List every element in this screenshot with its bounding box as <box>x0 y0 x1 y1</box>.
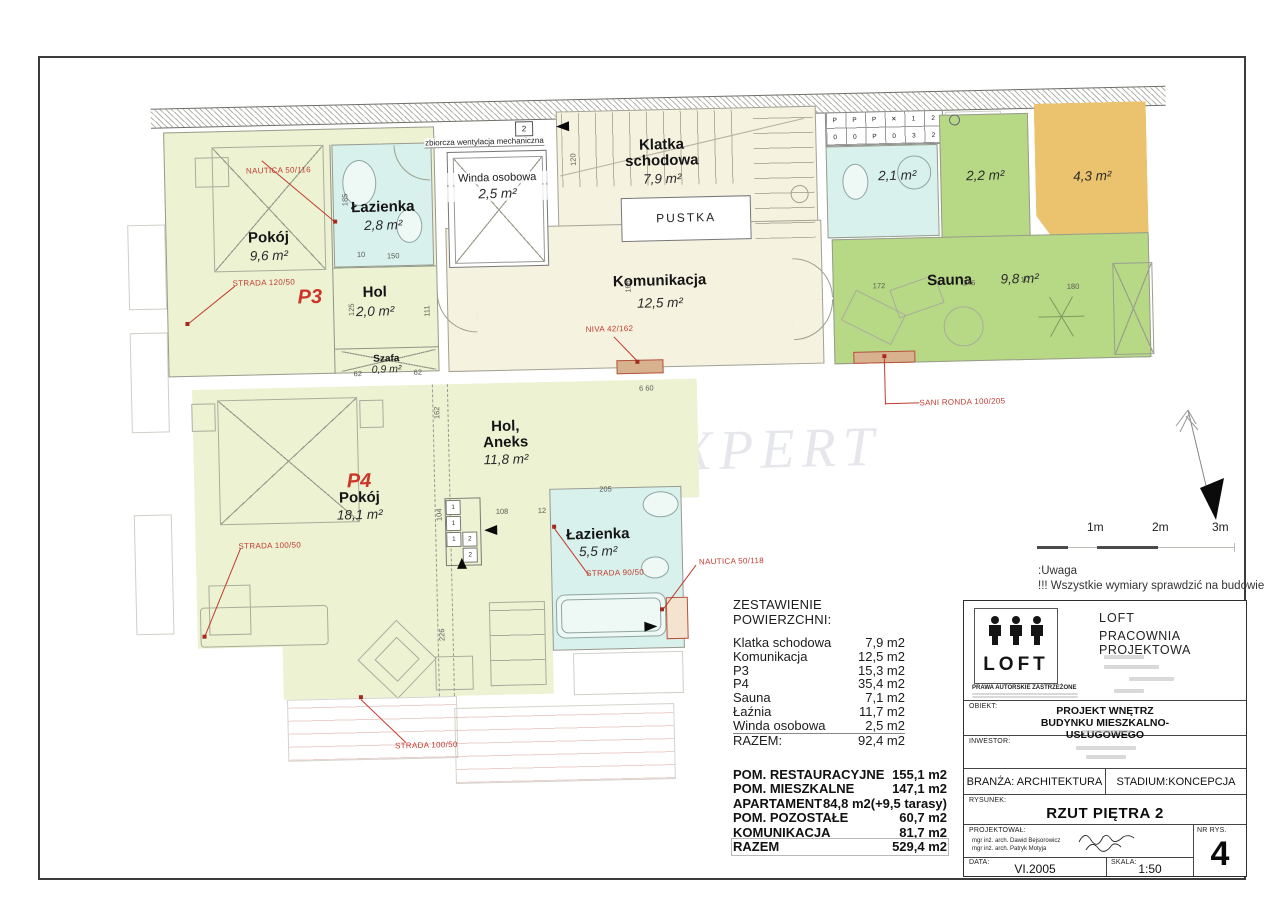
signature-icon <box>1076 828 1148 854</box>
scale-label: 1m <box>1087 520 1104 534</box>
room-label: Hol <box>335 284 415 302</box>
scale-segment <box>1068 547 1097 548</box>
terrace-step <box>573 651 684 695</box>
title-block-nr-rys: NR RYS. 4 <box>1194 825 1246 876</box>
laundry-cell: ✕ <box>884 111 904 128</box>
radiator-marker <box>616 359 663 374</box>
row-label: POM. RESTAURACYJNE <box>733 768 884 782</box>
laundry-cell: 0 <box>825 129 845 146</box>
drawing-title: RZUT PIĘTRA 2 <box>964 805 1246 822</box>
nightstand <box>359 400 384 429</box>
date-value: VI.2005 <box>964 862 1106 876</box>
scale-segment <box>1097 546 1158 549</box>
product-label: STRADA 120/50 <box>232 278 295 288</box>
bath-cabinet <box>666 597 689 639</box>
product-label: STRADA 90/50 <box>586 568 644 578</box>
vent-box: 2 <box>515 121 533 136</box>
fine-print <box>972 693 1078 695</box>
laundry-cell: P <box>865 128 885 145</box>
areas-table-title: ZESTAWIENIE POWIERZCHNI: <box>733 597 905 627</box>
room-area: 5,5 m² <box>551 543 646 560</box>
note: :Uwaga !!! Wszystkie wymiary sprawdzić n… <box>1038 564 1264 594</box>
room-area: 11,8 m² <box>468 451 543 468</box>
terrace <box>287 696 458 762</box>
room-label: Łazienka <box>338 199 428 217</box>
dimension-label: 185 <box>340 194 349 207</box>
kitchen-cell: 1 <box>445 500 460 515</box>
dimension-label: 12 <box>538 506 547 515</box>
row-value: 81,7 m2 <box>899 826 947 840</box>
door-arc <box>437 292 478 333</box>
studio-sub: PRACOWNIA PROJEKTOWA <box>1099 629 1246 657</box>
side-table <box>435 656 474 691</box>
desk <box>200 605 329 648</box>
kitchen-cell: 1 <box>446 516 461 531</box>
row-label: Komunikacja <box>733 650 807 664</box>
row-label: P4 <box>733 677 749 691</box>
table-row: POM. RESTAURACYJNE155,1 m2 <box>733 768 947 782</box>
stadium-cell: STADIUM:KONCEPCJA <box>1106 769 1246 795</box>
red-dot <box>202 635 206 639</box>
areas-table: ZESTAWIENIE POWIERZCHNI: Klatka schodowa… <box>733 597 905 747</box>
row-label: RAZEM: <box>733 734 782 748</box>
dimension-label: 6 60 <box>639 383 654 392</box>
inwestor-blur <box>1086 755 1126 759</box>
laundry-cell: 0 <box>845 129 865 146</box>
product-label: SANI RONDA 100/205 <box>919 396 1005 407</box>
designer-name: mgr inż. arch. Dawid Bejsorowicz <box>972 838 1060 844</box>
row-value: 92,4 m2 <box>858 734 905 748</box>
scale-tick <box>1234 543 1235 552</box>
product-label: NAUTICA 50/118 <box>699 556 764 566</box>
table-row: KOMUNIKACJA81,7 m2 <box>733 826 947 840</box>
laundry-cell: P <box>844 112 864 129</box>
dimension-label: 120 <box>568 153 577 166</box>
title-block-projektowal: PROJEKTOWAŁ: mgr inż. arch. Dawid Bejsor… <box>964 825 1194 858</box>
door-arc <box>793 299 834 340</box>
scale-segment <box>1158 547 1234 548</box>
dimension-label: 125 <box>347 303 356 316</box>
branza-cell: BRANŻA: ARCHITEKTURA <box>964 769 1106 795</box>
title-block-data-skala: DATA: VI.2005 SKALA: 1:50 <box>964 858 1194 876</box>
dimension-label: 162 <box>432 406 441 419</box>
balcony <box>130 332 170 433</box>
room-area: 2,1 m² <box>842 167 952 184</box>
dimension-label: 226 <box>437 628 446 641</box>
logo-box: LOFT <box>974 608 1058 684</box>
floor-plan-sheet: { "plan": { "watermark": "ON'S EXPERT", … <box>0 0 1280 905</box>
scale-label: 3m <box>1212 520 1229 534</box>
copyright-text: PRAWA AUTORSKIE ZASTRZEŻONE <box>972 685 1092 691</box>
dimension-label: 150 <box>387 251 400 260</box>
room-area: 2,2 m² <box>940 167 1030 184</box>
dimension-label: 205 <box>599 484 612 493</box>
note-line: :Uwaga <box>1038 564 1264 579</box>
designer-name: mgr inż. arch. Patryk Motyja <box>972 846 1046 852</box>
red-dot <box>635 360 639 364</box>
drawing-number: 4 <box>1194 835 1246 874</box>
red-dot <box>882 354 886 358</box>
scale-bar: 1m 2m 3m <box>1035 520 1240 554</box>
room-label: Komunikacja <box>589 272 729 291</box>
dimension-label: 10 <box>357 250 366 259</box>
laundry-cell: 1 <box>903 110 923 127</box>
logo-figures-icon <box>985 615 1047 647</box>
row-label: POM. POZOSTAŁE <box>733 811 848 825</box>
vent-label: zbiorcza wentylacja mechaniczna <box>424 136 544 149</box>
room-area: 7,9 m² <box>592 170 732 188</box>
field-label: OBIEKT: <box>969 703 997 710</box>
row-value: 60,7 m2 <box>899 811 947 825</box>
balcony <box>134 514 175 635</box>
red-dot <box>552 525 556 529</box>
room-area: 12,5 m² <box>590 294 730 312</box>
field-label: NR RYS. <box>1197 827 1227 834</box>
table-row: P315,3 m2 <box>733 664 905 678</box>
balcony <box>127 224 167 310</box>
red-dot <box>359 695 363 699</box>
obiekt-blur <box>1082 730 1132 733</box>
table-row-total: RAZEM529,4 m2 <box>733 840 947 854</box>
dimension-label: 180 <box>1067 282 1080 291</box>
address-blur <box>1129 677 1174 681</box>
row-label: Klatka schodowa <box>733 636 831 650</box>
room-label: Pokój <box>228 229 308 247</box>
laundry-cell: P <box>864 111 884 128</box>
product-label: STRADA 100/50 <box>238 540 301 550</box>
dimension-label: 111 <box>422 305 431 317</box>
laundry-cell: P <box>825 112 845 129</box>
address-blur <box>1114 689 1144 693</box>
title-block-inwestor: INWESTOR: <box>964 736 1246 769</box>
room-sauna <box>832 232 1152 364</box>
scale-value: 1:50 <box>1106 862 1194 876</box>
logo-text: LOFT <box>975 654 1057 676</box>
dimension-label: 104 <box>434 508 443 521</box>
row-value: 35,4 m2 <box>858 677 905 691</box>
inwestor-blur <box>1076 746 1136 750</box>
row-value: 2,5 m2 <box>865 719 905 733</box>
table-row: Winda osobowa2,5 m2 <box>733 719 905 733</box>
room-label: Aneks <box>468 434 543 452</box>
dimension-label: 62 <box>354 369 363 378</box>
row-value: 7,9 m2 <box>865 636 905 650</box>
laundry-cell: 0 <box>884 128 904 145</box>
room-label: schodowa <box>592 152 732 171</box>
room-label: Winda osobowa <box>447 171 547 185</box>
direction-arrow-icon <box>484 525 497 535</box>
direction-arrow-icon <box>644 621 657 631</box>
row-value: 529,4 m2 <box>892 840 947 854</box>
hatched-column <box>1112 262 1154 355</box>
scale-segment <box>1037 546 1068 549</box>
apartment-code: P3 <box>285 286 336 310</box>
kitchen-cell: 1 <box>446 532 461 547</box>
room-area: 4,3 m² <box>1047 167 1137 184</box>
title-block-obiekt: OBIEKT: PROJEKT WNĘTRZ BUDYNKU MIESZKALN… <box>964 701 1246 736</box>
row-label: KOMUNIKACJA <box>733 826 831 840</box>
sofa <box>489 601 547 686</box>
room-area: 2,5 m² <box>447 185 547 202</box>
title-block-rysunek: RYSUNEK: RZUT PIĘTRA 2 <box>964 795 1246 825</box>
red-dot <box>185 322 189 326</box>
table-row: POM. MIESZKALNE147,1 m2 <box>733 782 947 796</box>
door-arc <box>792 257 833 298</box>
leader-line <box>884 359 886 405</box>
fine-print <box>972 696 1078 698</box>
table-row: Sauna7,1 m2 <box>733 691 905 705</box>
table-row: P435,4 m2 <box>733 677 905 691</box>
table-row-total: RAZEM:92,4 m2 <box>733 733 905 748</box>
direction-arrow-icon <box>556 121 569 131</box>
note-line: !!! Wszystkie wymiary sprawdzić na budow… <box>1038 579 1264 594</box>
room-area: 2,8 m² <box>338 216 428 233</box>
dimension-label: 62 <box>413 368 422 377</box>
row-label: POM. MIESZKALNE <box>733 782 854 796</box>
dimension-label: 108 <box>496 507 509 516</box>
row-value: 15,3 m2 <box>858 664 905 678</box>
north-arrow-icon <box>1158 396 1242 536</box>
title-block-header: LOFT PRAWA AUTORSKIE ZASTRZEŻONE LOFT PR… <box>964 601 1246 701</box>
laundry-cell: 3 <box>904 127 924 144</box>
field-label: PROJEKTOWAŁ: <box>969 827 1026 834</box>
scale-label: 2m <box>1152 520 1169 534</box>
room-area: 18,1 m² <box>318 506 402 523</box>
row-value: 12,5 m2 <box>858 650 905 664</box>
address-blur <box>1104 665 1159 669</box>
table-row: Klatka schodowa7,9 m2 <box>733 636 905 650</box>
kitchen-cell: 2 <box>462 531 477 546</box>
dimension-label: 166 <box>623 280 632 293</box>
row-value: 7,1 m2 <box>865 691 905 705</box>
title-block-branza: BRANŻA: ARCHITEKTURA STADIUM:KONCEPCJA <box>964 769 1246 795</box>
row-label: APARTAMENT <box>733 797 822 811</box>
table-row: Łaźnia11,7 m2 <box>733 705 905 719</box>
row-label: P3 <box>733 664 749 678</box>
summary-table: POM. RESTAURACYJNE155,1 m2 POM. MIESZKAL… <box>733 768 947 854</box>
room-area: 9,8 m² <box>989 270 1049 286</box>
red-dot <box>660 607 664 611</box>
row-label: Sauna <box>733 691 771 705</box>
row-value: 147,1 m2 <box>892 782 947 796</box>
studio-name: LOFT <box>1099 611 1135 625</box>
leader-line <box>885 402 919 404</box>
dimension-label: 172 <box>873 281 886 290</box>
nightstand <box>191 403 216 432</box>
table-row: Komunikacja12,5 m2 <box>733 650 905 664</box>
table-row: POM. POZOSTAŁE60,7 m2 <box>733 811 947 825</box>
title-block: LOFT PRAWA AUTORSKIE ZASTRZEŻONE LOFT PR… <box>963 600 1247 877</box>
obiekt-line: PROJEKT WNĘTRZ <box>1004 705 1206 717</box>
row-label: RAZEM <box>733 840 779 854</box>
room-label: Pokój <box>317 489 401 507</box>
row-value: 84,8 m2(+9,5 tarasy) <box>823 797 947 811</box>
terrace <box>454 703 676 784</box>
field-label: INWESTOR: <box>969 738 1010 745</box>
product-label: NIVA 42/162 <box>586 324 634 334</box>
field-label: RYSUNEK: <box>969 797 1006 804</box>
row-value: 155,1 m2 <box>892 768 947 782</box>
room-area: 9,6 m² <box>229 247 309 264</box>
address-blur <box>1104 655 1144 659</box>
row-value: 11,7 m2 <box>859 705 905 719</box>
direction-arrow-icon <box>457 558 467 569</box>
red-dot <box>333 220 337 224</box>
dimension-label: 146 <box>963 278 976 287</box>
table-row: APARTAMENT84,8 m2(+9,5 tarasy) <box>733 797 947 811</box>
void-label: PUSTKA <box>621 209 751 226</box>
row-label: Łaźnia <box>733 705 771 719</box>
row-label: Winda osobowa <box>733 719 826 733</box>
dimension-label: 10 <box>1021 275 1030 284</box>
